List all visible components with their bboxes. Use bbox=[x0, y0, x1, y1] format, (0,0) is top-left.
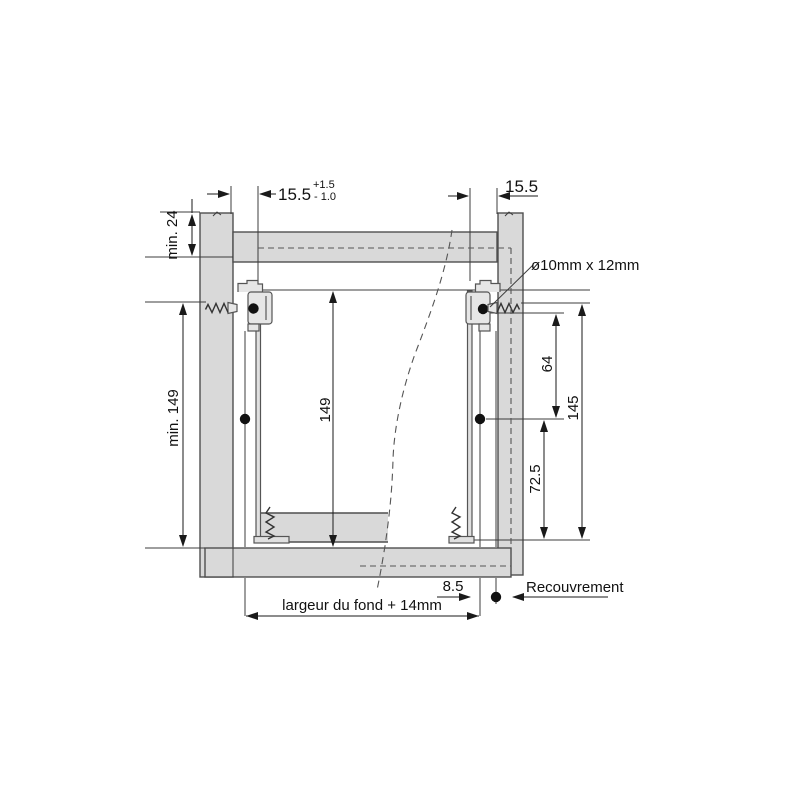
drawer-installation-diagram: min. 24 15.5 +1.5 - 1.0 15.5 min. 149 14… bbox=[0, 0, 800, 800]
dim-8-5: 8.5 bbox=[437, 578, 470, 597]
dim-label: 64 bbox=[539, 356, 556, 373]
right-profile-foot bbox=[449, 537, 474, 544]
bottom-width-label: largeur du fond + 14mm bbox=[282, 597, 442, 614]
screw-head bbox=[228, 303, 237, 314]
bracket-hook bbox=[476, 281, 501, 293]
dim-72-5: 72.5 bbox=[527, 421, 544, 538]
dowel-label: ø10mm x 12mm bbox=[531, 257, 639, 274]
dim-15-5-left: 15.5 +1.5 - 1.0 bbox=[207, 179, 336, 204]
dim-145: 145 bbox=[565, 305, 582, 538]
left-rear-bracket bbox=[238, 281, 272, 332]
dim-label: 149 bbox=[317, 397, 334, 422]
front-screw-hole-dot bbox=[491, 592, 501, 602]
dim-bottom-width: largeur du fond + 14mm bbox=[246, 597, 479, 616]
dim-min-24: min. 24 bbox=[164, 199, 192, 260]
dim-min-149: min. 149 bbox=[165, 304, 183, 546]
cabinet-left-side-panel bbox=[200, 212, 233, 577]
dim-tolerance-minus: - 1.0 bbox=[314, 191, 336, 203]
dim-15-5-right: 15.5 bbox=[448, 177, 538, 196]
overlay-label: Recouvrement bbox=[526, 579, 624, 596]
dim-149: 149 bbox=[317, 292, 334, 546]
dim-64: 64 bbox=[539, 315, 556, 417]
right-side-hole-dot bbox=[475, 414, 485, 424]
right-drawer-side-profile bbox=[449, 291, 474, 543]
dim-label: 15.5 bbox=[278, 185, 311, 204]
dim-label: 72.5 bbox=[527, 464, 544, 493]
dim-label: min. 24 bbox=[164, 210, 181, 259]
bracket-hole-dot bbox=[478, 304, 488, 314]
break-line bbox=[377, 230, 452, 590]
dim-label: min. 149 bbox=[165, 389, 182, 447]
dim-label: 8.5 bbox=[443, 578, 464, 595]
dim-label: 15.5 bbox=[505, 177, 538, 196]
dim-recouvrement: Recouvrement bbox=[513, 579, 624, 597]
drawer-front-panel bbox=[205, 548, 511, 577]
right-bottom-screw bbox=[452, 507, 460, 539]
dim-label: 145 bbox=[565, 395, 582, 420]
bracket-hole-dot bbox=[248, 303, 258, 313]
cabinet-back-panel bbox=[233, 232, 497, 262]
left-side-hole-dot bbox=[240, 414, 250, 424]
bracket-hook bbox=[238, 281, 263, 293]
technical-drawing-page: min. 24 15.5 +1.5 - 1.0 15.5 min. 149 14… bbox=[0, 0, 800, 800]
dim-tolerance-plus: +1.5 bbox=[313, 179, 335, 191]
